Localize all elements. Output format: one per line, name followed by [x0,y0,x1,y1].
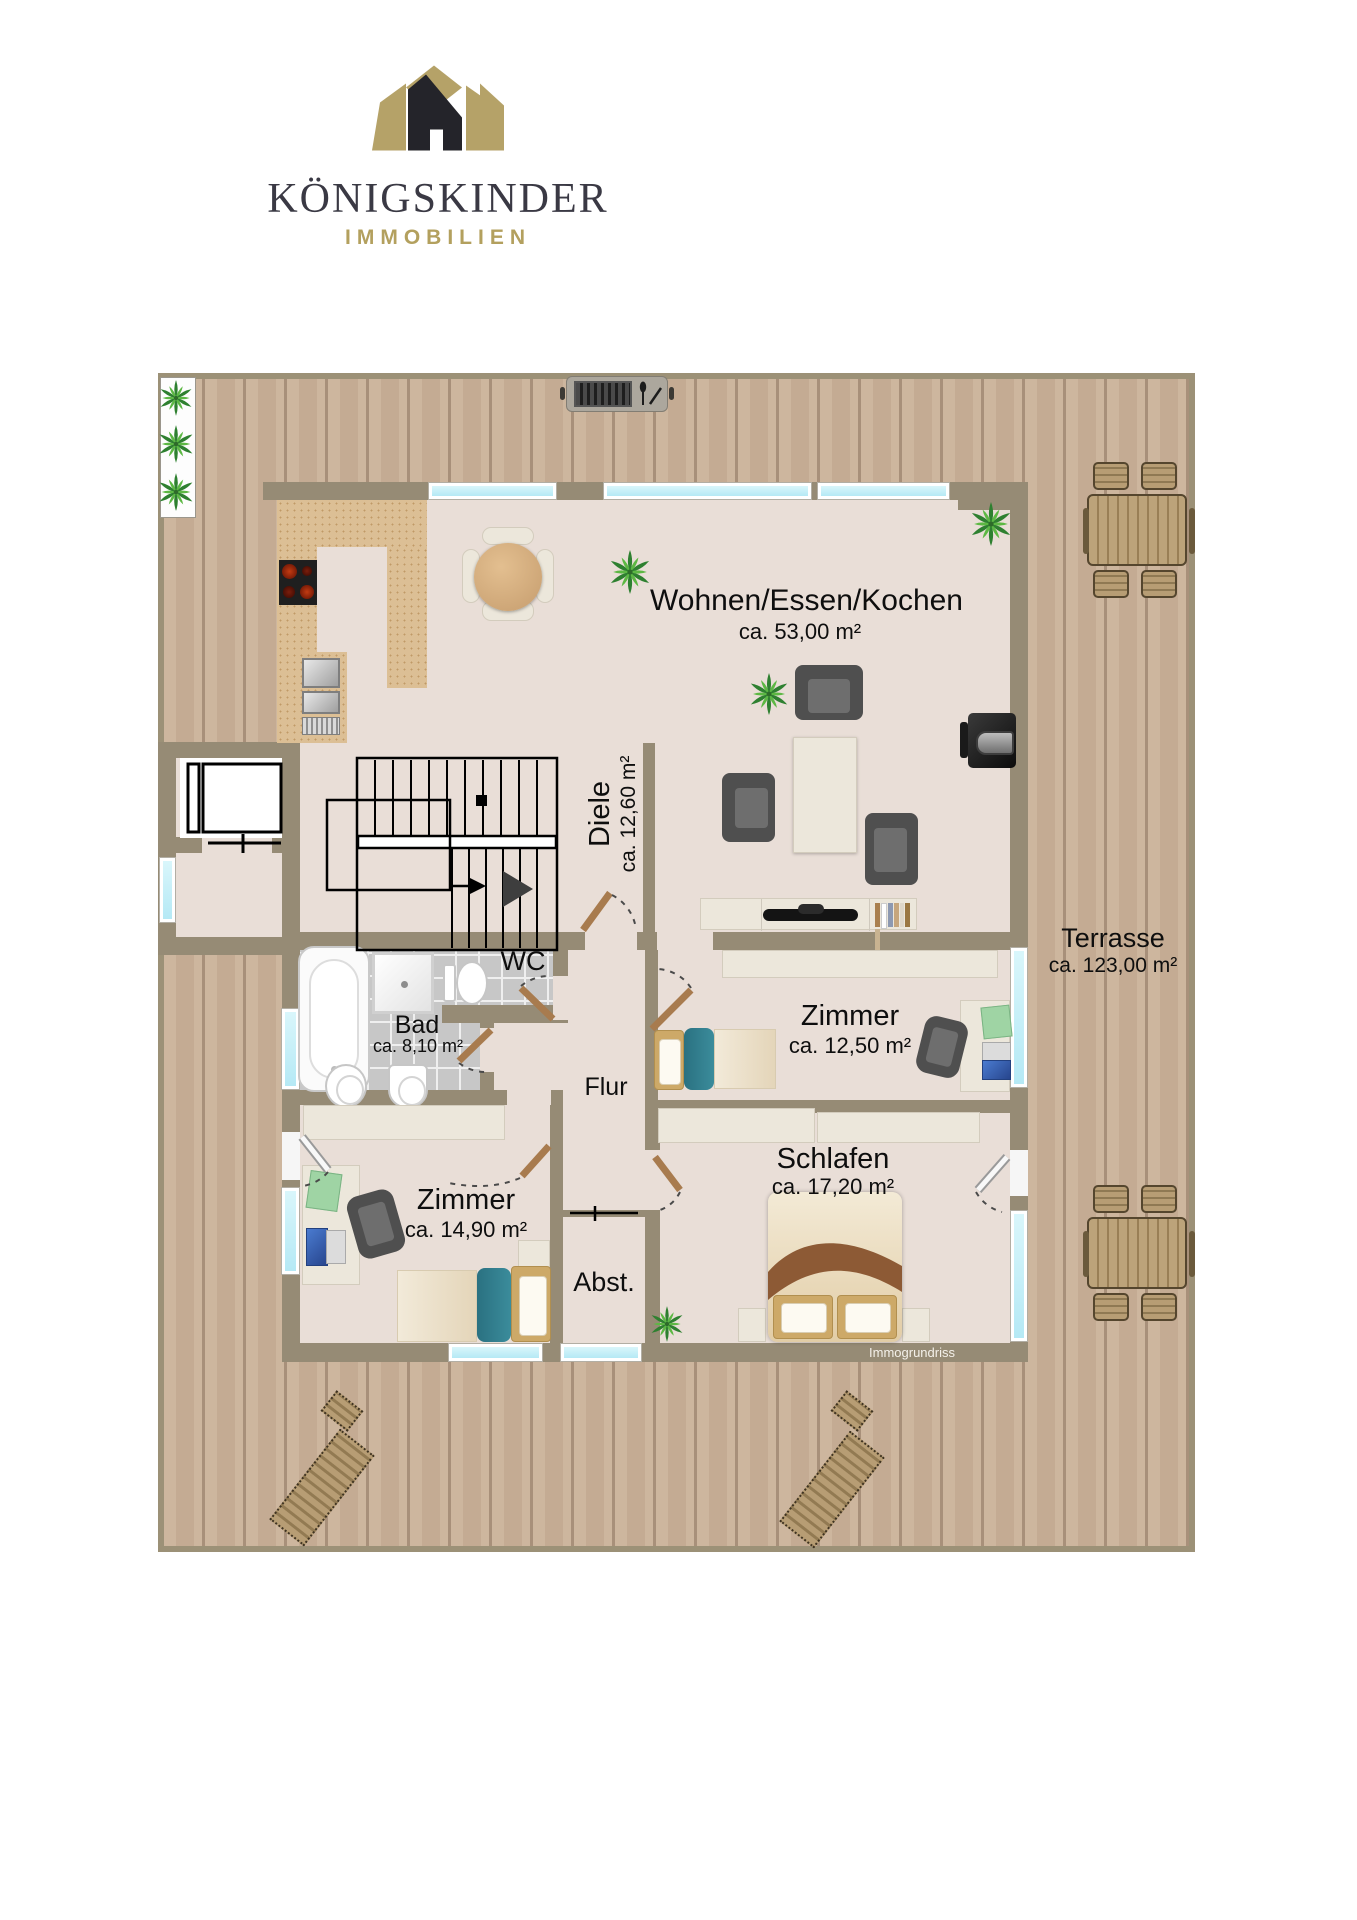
room-label-hall: Diele ca. 12,60 m² [585,738,641,890]
toilet-icon [456,961,488,1005]
outdoor-chair-icon [1141,570,1177,598]
room-label-room1: Zimmer ca. 12,50 m² [780,1001,920,1058]
wardrobe [722,950,998,978]
outdoor-chair-icon [1093,1293,1129,1321]
cutlery-icon [637,381,665,407]
window [1010,947,1028,1088]
armchair-icon [722,773,775,842]
washbasin-icon [388,1064,428,1108]
wardrobe [817,1112,980,1143]
drainboard [302,717,340,735]
outdoor-chair-icon [1141,462,1177,490]
sideboard [700,898,917,930]
wall-sleeping-left [645,1113,660,1343]
armchair-icon [865,813,918,885]
nightstand [518,1240,550,1268]
bed-icon [511,1266,551,1342]
doorway-room1 [657,932,713,950]
doorway-room2 [507,1090,551,1105]
tv-flat-icon [798,904,824,914]
wall-entry-top [158,742,300,758]
window [560,1343,642,1362]
laptop-icon [306,1228,328,1266]
outdoor-dining-set [1083,1183,1195,1325]
bed-blanket [477,1268,511,1342]
desk-pad [306,1170,343,1212]
armchair-icon [795,665,863,720]
window [603,482,812,500]
watermark: Immogrundriss [852,1345,972,1360]
table-armrest [1189,1231,1195,1277]
outdoor-table-icon [1087,1217,1187,1289]
grill-grate [574,381,632,407]
outdoor-dining-set [1083,460,1195,602]
coffee-table [793,737,857,853]
wall-room2-right [550,1105,563,1343]
double-bed-icon [768,1192,902,1342]
window [281,1187,300,1275]
desk-pad [980,1005,1012,1040]
grill-handle [669,387,674,400]
nightstand [902,1308,930,1342]
floorplan-page: KÖNIGSKINDER IMMOBILIEN [0,0,1357,1920]
wardrobe [658,1108,815,1143]
tv-unit-icon [968,713,1016,768]
nightstand [738,1308,766,1342]
terrace-door-opening [1010,1150,1028,1196]
kitchen-counter [277,500,427,547]
outdoor-chair-icon [1093,570,1129,598]
dining-table-icon [474,543,542,611]
window [159,857,176,923]
table-armrest [1083,1231,1089,1277]
laptop-icon [982,1042,1011,1062]
wall-entry-bottom [158,937,300,955]
wall-stub [272,837,300,853]
brand-name: KÖNIGSKINDER [238,175,638,223]
wall-stub [158,837,202,853]
room-label-terrace: Terrasse ca. 123,00 m² [1047,924,1179,978]
kitchen-sink-icon [302,691,340,714]
doorway-hall-corridor [585,932,637,950]
kitchen-sink-icon [302,658,340,688]
laptop-icon [982,1060,1011,1080]
bed-mattress [714,1029,776,1089]
room-area-bath: ca. 8,10 m² [360,1037,476,1056]
crown-house-icon [368,55,508,155]
window [1010,1210,1028,1342]
outdoor-chair-icon [1141,1185,1177,1213]
wall-hall-living [643,743,655,932]
outdoor-chair-icon [1093,1185,1129,1213]
kitchen-counter [387,547,427,688]
wardrobe [303,1105,505,1140]
planter-box [160,377,196,518]
outdoor-chair-icon [1141,1293,1177,1321]
terrace-door-opening [282,1132,300,1180]
window [448,1343,543,1362]
wall-wc-bottom [442,1005,553,1023]
window [817,482,950,500]
shower-icon [372,952,434,1014]
laptop-icon [326,1230,346,1264]
doorway-wc [553,976,568,1020]
grill-handle [560,387,565,400]
room-label-living: Wohnen/Essen/Kochen ca. 53,00 m² [650,585,950,644]
room-label-storage: Abst. [566,1268,642,1297]
bed-mattress [397,1270,477,1342]
doorway-bath [480,1028,494,1072]
room-label-sleeping: Schlafen ca. 17,20 m² [763,1144,903,1199]
room-label-wc: WC [492,947,554,976]
bed-blanket [684,1028,714,1090]
stove-icon [279,560,317,605]
table-armrest [1083,508,1089,554]
toilet-icon [443,964,456,1002]
books-icon [875,903,916,953]
grill-icon [566,376,668,412]
wall-storage-top [563,1210,645,1217]
doorway-sleeping [645,1150,660,1210]
outdoor-table-icon [1087,494,1187,566]
bed-icon [654,1030,684,1090]
brand-tagline: IMMOBILIEN [238,226,638,250]
room-label-corridor: Flur [574,1074,638,1101]
window [428,482,557,500]
room-label-room2: Zimmer ca. 14,90 m² [396,1185,536,1242]
table-armrest [1189,508,1195,554]
bidet-icon [325,1064,367,1108]
outdoor-chair-icon [1093,462,1129,490]
room-label-bath: Bad [385,1012,449,1039]
